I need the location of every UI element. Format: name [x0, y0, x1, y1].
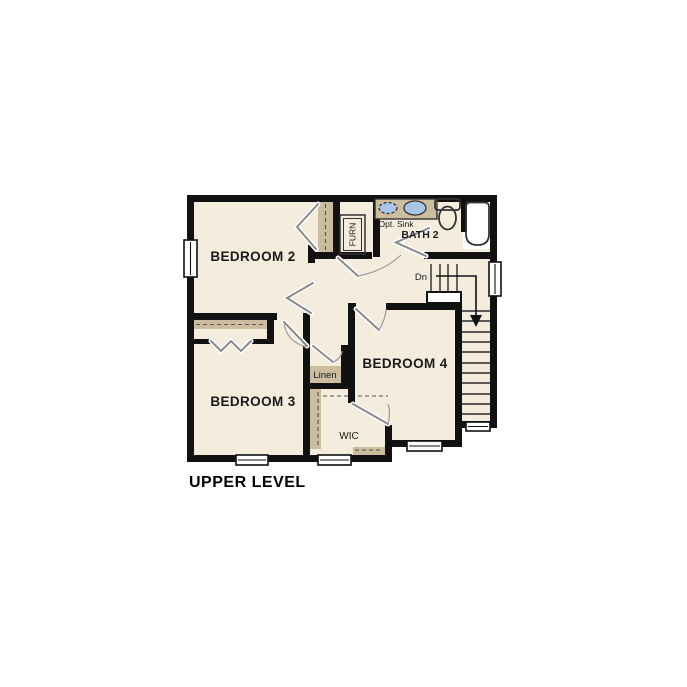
bedroom3-window [236, 455, 268, 465]
wall-linen-south [303, 383, 348, 389]
wall-closet-front-right [250, 339, 274, 344]
wall-bath-south [424, 252, 497, 259]
wall-bedroom4-top-right [386, 303, 462, 310]
optional-sink-basin [379, 203, 397, 214]
linen-label: Linen [313, 370, 336, 381]
bedroom2-window [184, 240, 197, 277]
bedroom3-label: BEDROOM 3 [210, 394, 295, 409]
bedroom2-label: BEDROOM 2 [210, 249, 295, 264]
wall-furnace-left [333, 202, 340, 256]
wic-label: WIC [339, 431, 358, 442]
wall-exterior-bottom [187, 455, 392, 462]
stairwell-window-right [489, 262, 501, 296]
wall-bedroom4-left [348, 303, 355, 403]
page-title: UPPER LEVEL [189, 474, 306, 491]
wall-bedroom2-south [194, 313, 277, 320]
floor-plan: FURN [0, 0, 687, 687]
opt-sink-label: Opt. Sink [379, 219, 415, 229]
floor-plan-page: FURN [0, 0, 687, 687]
bedroom4-label: BEDROOM 4 [362, 356, 447, 371]
bath2-label: BATH 2 [401, 229, 438, 241]
wic-shelf-left [310, 389, 321, 449]
furnace-label: FURN [348, 223, 358, 247]
stairs-down-label: Dn [415, 272, 427, 283]
wall-wic-right [385, 425, 392, 447]
wall-exterior-left [187, 195, 194, 462]
wall-bedroom4-right [455, 303, 462, 447]
wall-exterior-right [490, 195, 497, 428]
wic-shelf-bottom [353, 447, 385, 455]
bedroom4-window [407, 441, 442, 451]
sink-basin [404, 201, 426, 215]
wall-furnace-south [315, 252, 372, 259]
stairwell-window-bottom [466, 422, 490, 431]
stair-landing [427, 292, 461, 303]
wic-window [318, 455, 351, 465]
